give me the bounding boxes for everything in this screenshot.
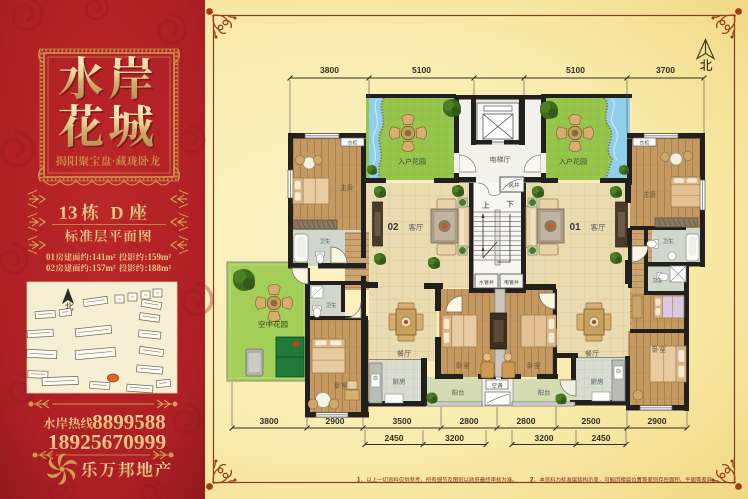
svg-text:2450: 2450 bbox=[385, 433, 404, 443]
svg-text:3200: 3200 bbox=[535, 433, 554, 443]
svg-text:2900: 2900 bbox=[326, 416, 345, 426]
svg-text::157m²: :157m² bbox=[89, 263, 116, 273]
svg-text:2800: 2800 bbox=[460, 416, 479, 426]
svg-text:2450: 2450 bbox=[592, 433, 611, 443]
svg-text:5100: 5100 bbox=[566, 65, 585, 75]
svg-text::159m²: :159m² bbox=[145, 252, 172, 262]
svg-text:02: 02 bbox=[387, 222, 399, 233]
svg-text:5100: 5100 bbox=[412, 65, 431, 75]
svg-text:02: 02 bbox=[46, 263, 56, 273]
svg-text:D: D bbox=[111, 203, 124, 223]
svg-text:18925670999: 18925670999 bbox=[48, 430, 166, 454]
svg-text:2800: 2800 bbox=[517, 416, 536, 426]
svg-text:3500: 3500 bbox=[393, 416, 412, 426]
svg-text:3800: 3800 bbox=[260, 416, 279, 426]
svg-text:3700: 3700 bbox=[656, 65, 675, 75]
svg-text:01: 01 bbox=[46, 252, 56, 262]
svg-text:13: 13 bbox=[59, 203, 78, 224]
svg-text:2500: 2500 bbox=[582, 416, 601, 426]
svg-text:3200: 3200 bbox=[445, 433, 464, 443]
svg-text:3800: 3800 bbox=[320, 65, 339, 75]
svg-text:2900: 2900 bbox=[648, 416, 667, 426]
svg-text:01: 01 bbox=[569, 222, 581, 233]
svg-text::141m²: :141m² bbox=[89, 252, 116, 262]
svg-text::188m²: :188m² bbox=[145, 263, 172, 273]
